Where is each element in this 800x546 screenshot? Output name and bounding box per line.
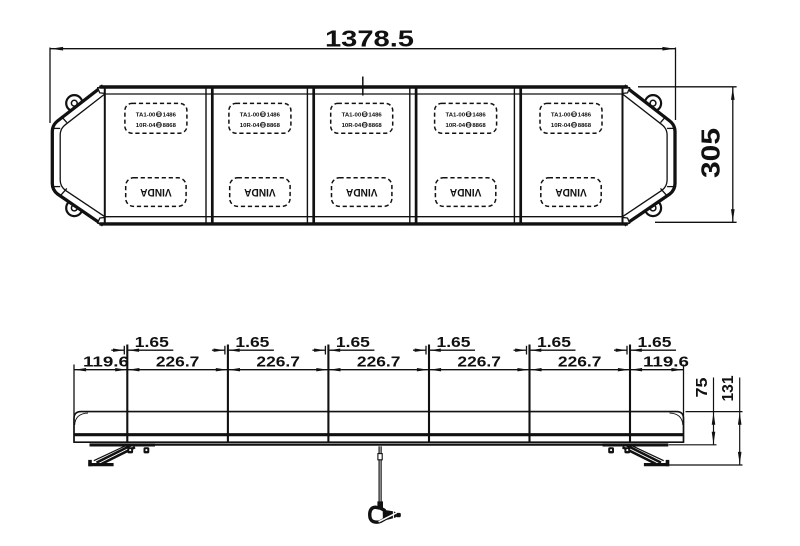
svg-text:8868: 8868 (578, 123, 592, 129)
svg-text:10R-04: 10R-04 (136, 123, 156, 129)
svg-text:E9: E9 (466, 123, 471, 127)
svg-text:E9: E9 (572, 113, 577, 117)
svg-text:1486: 1486 (267, 112, 281, 118)
svg-text:119.6: 119.6 (83, 355, 129, 371)
svg-text:E9: E9 (466, 113, 471, 117)
svg-text:226.7: 226.7 (558, 355, 602, 371)
svg-text:131: 131 (720, 375, 737, 401)
svg-text:VINDA: VINDA (346, 186, 378, 198)
svg-text:1.65: 1.65 (135, 335, 169, 351)
svg-text:10R-04: 10R-04 (240, 123, 260, 129)
svg-text:1378.5: 1378.5 (325, 25, 414, 51)
svg-text:TA1-00: TA1-00 (551, 112, 571, 118)
svg-text:10R-04: 10R-04 (342, 123, 362, 129)
svg-text:E9: E9 (157, 113, 162, 117)
svg-text:E9: E9 (362, 113, 367, 117)
svg-text:E9: E9 (572, 123, 577, 127)
svg-text:1.65: 1.65 (638, 335, 672, 351)
svg-text:VINDA: VINDA (555, 186, 587, 198)
svg-text:8868: 8868 (368, 123, 382, 129)
svg-text:TA1-00: TA1-00 (342, 112, 362, 118)
svg-text:1.65: 1.65 (537, 335, 571, 351)
svg-text:1.65: 1.65 (437, 335, 471, 351)
svg-text:10R-04: 10R-04 (446, 123, 466, 129)
svg-text:305: 305 (696, 128, 726, 178)
svg-text:1486: 1486 (163, 112, 177, 118)
svg-text:119.6: 119.6 (643, 355, 689, 371)
svg-text:TA1-00: TA1-00 (136, 112, 156, 118)
svg-text:E9: E9 (261, 123, 266, 127)
svg-text:226.7: 226.7 (357, 355, 401, 371)
svg-text:E9: E9 (261, 113, 266, 117)
svg-text:1486: 1486 (368, 112, 382, 118)
svg-text:VINDA: VINDA (140, 186, 172, 198)
svg-text:1.65: 1.65 (235, 335, 269, 351)
svg-text:226.7: 226.7 (156, 355, 200, 371)
svg-text:1486: 1486 (578, 112, 592, 118)
svg-text:10R-04: 10R-04 (551, 123, 571, 129)
svg-text:E9: E9 (157, 123, 162, 127)
svg-text:TA1-00: TA1-00 (446, 112, 466, 118)
svg-text:8868: 8868 (472, 123, 486, 129)
svg-text:226.7: 226.7 (457, 355, 501, 371)
svg-text:1.65: 1.65 (336, 335, 370, 351)
svg-text:8868: 8868 (163, 123, 177, 129)
svg-text:226.7: 226.7 (256, 355, 300, 371)
svg-text:VINDA: VINDA (450, 186, 482, 198)
svg-text:1486: 1486 (472, 112, 486, 118)
svg-text:TA1-00: TA1-00 (240, 112, 260, 118)
svg-text:VINDA: VINDA (244, 186, 276, 198)
svg-text:75: 75 (694, 377, 711, 397)
svg-text:E9: E9 (362, 123, 367, 127)
svg-text:8868: 8868 (267, 123, 281, 129)
